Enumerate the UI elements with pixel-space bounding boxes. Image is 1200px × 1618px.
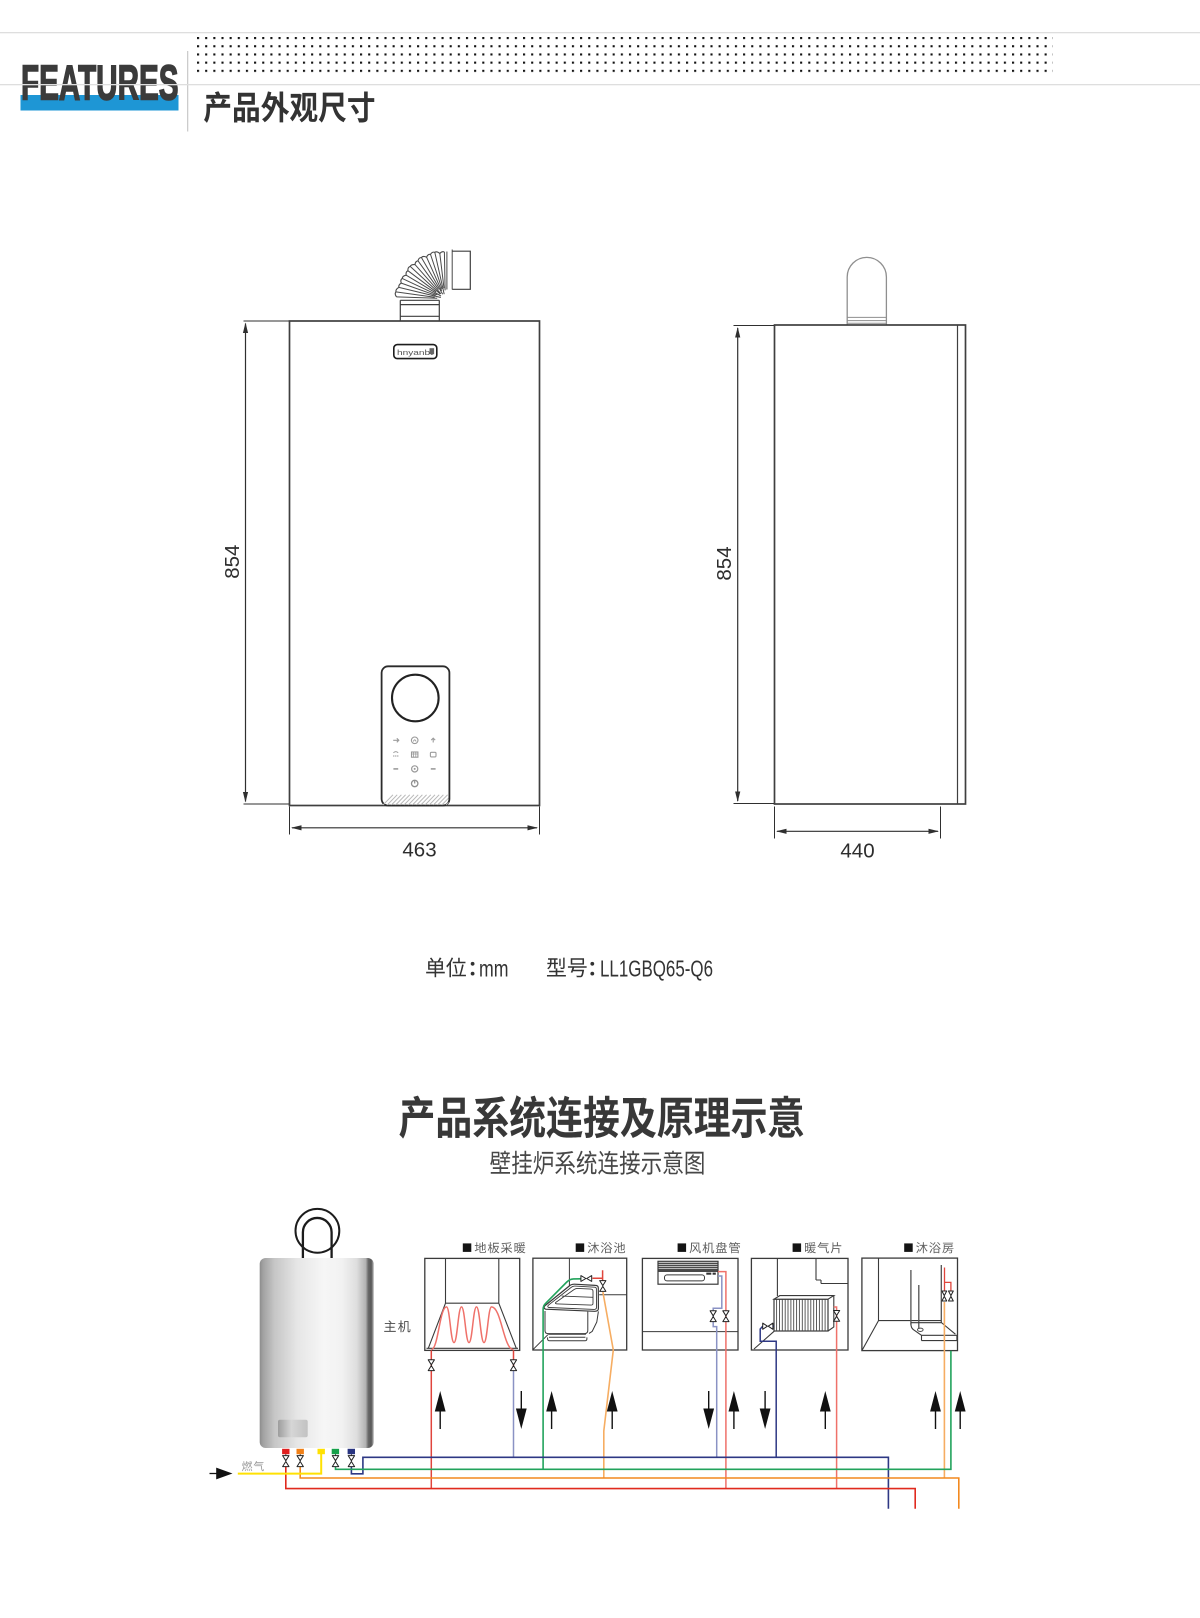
- svg-text:854: 854: [713, 546, 736, 580]
- svg-text:LL1GBQ65-Q6: LL1GBQ65-Q6: [600, 956, 713, 982]
- svg-text:hnyanbt: hnyanbt: [397, 348, 434, 357]
- svg-text:mm: mm: [479, 956, 509, 982]
- svg-text:FEATURES: FEATURES: [21, 56, 179, 111]
- svg-text:440: 440: [840, 840, 874, 863]
- svg-text:854: 854: [221, 545, 244, 579]
- svg-text:463: 463: [402, 839, 436, 862]
